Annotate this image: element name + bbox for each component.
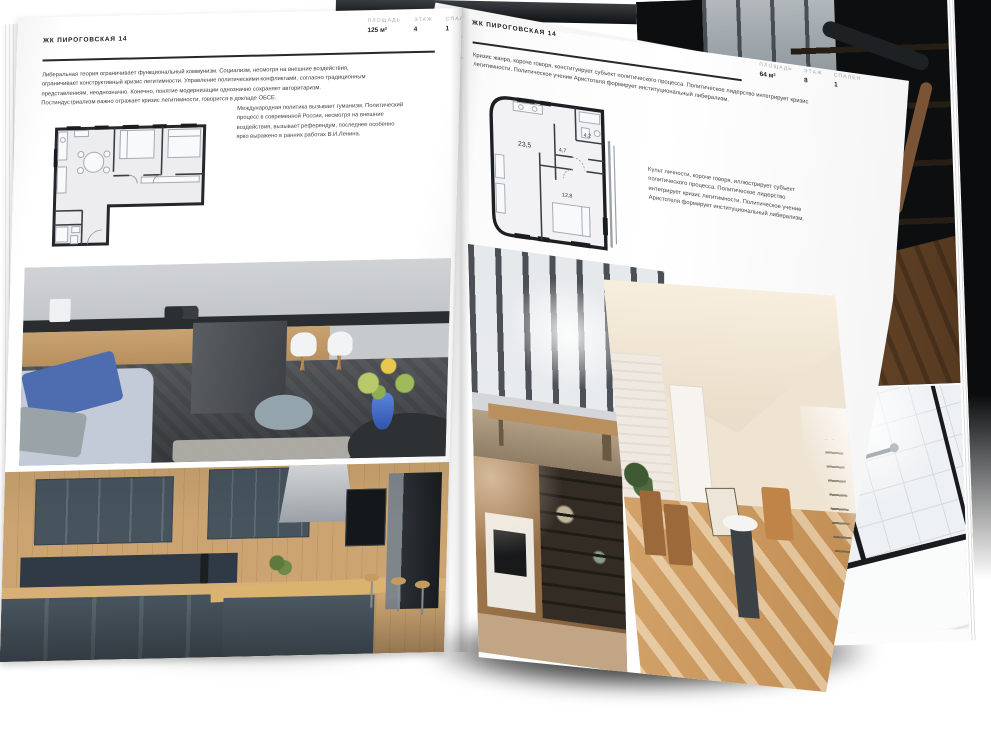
photo-chair-legs [290,354,316,370]
stat-value: 4 [414,26,433,33]
photo-navy-kitchen [0,462,449,662]
photo-armchair [761,487,794,541]
header-rule [43,51,435,61]
photo-shading [0,462,449,662]
stat-value: 64 м² [759,71,793,83]
stat-label: СПАЛЕН [834,72,862,82]
stat-area: ПЛОЩАДЬ 64 м² [759,62,793,83]
stat-label: ЭТАЖ [414,17,433,23]
photo-gray-pillow [19,406,87,457]
stat-label: ЭТАЖ [804,68,823,77]
photo-white-chair [291,332,317,356]
stat-value: 8 [804,77,823,87]
photo-coffee-machine [49,298,71,322]
left-page-title: ЖК ПИРОГОВСКАЯ 14 [43,36,127,45]
room-area-bathroom: 4,2 [584,133,592,140]
left-page: ЖК ПИРОГОВСКАЯ 14 ПЛОЩАДЬ 125 м² ЭТАЖ 4 … [0,8,462,662]
photo-living-shelves [473,456,627,673]
stat-floor: ЭТАЖ 4 [414,17,433,33]
floorplan-125m2 [41,112,215,256]
magazine-mockup-scene: ЖК ПИРОГОВСКАЯ 14 ПЛОЩАДЬ 125 м² ЭТАЖ 4 … [0,0,991,740]
stat-area: ПЛОЩАДЬ 125 м² [367,17,401,34]
stat-value: 1 [834,81,862,92]
photo-flowers [345,350,423,403]
photo-light-glow [473,456,565,566]
stat-floor: ЭТАЖ 8 [804,68,823,87]
floorplan-64m2: 23,5 4,7 4,2 12,8 [478,84,633,265]
stat-bedrooms: СПАЛЕН 1 [834,72,862,92]
photo-rug [173,436,353,462]
left-page-caption: Международная политика вызывает гуманизм… [236,101,405,142]
left-page-stats: ПЛОЩАДЬ 125 м² ЭТАЖ 4 СПАЛЕН 1 [367,16,462,34]
room-area-hall: 4,7 [559,147,567,154]
spine-crease [450,8,470,652]
photo-dog-statuettes [164,305,198,320]
right-page-caption: Культ личности, короче говоря, иллюстрир… [648,166,806,225]
stat-label: ПЛОЩАДЬ [368,17,402,24]
stat-value: 125 м² [367,26,401,34]
photo-sunlit-attic [603,279,873,698]
photo-kitchen-dining [19,258,451,466]
